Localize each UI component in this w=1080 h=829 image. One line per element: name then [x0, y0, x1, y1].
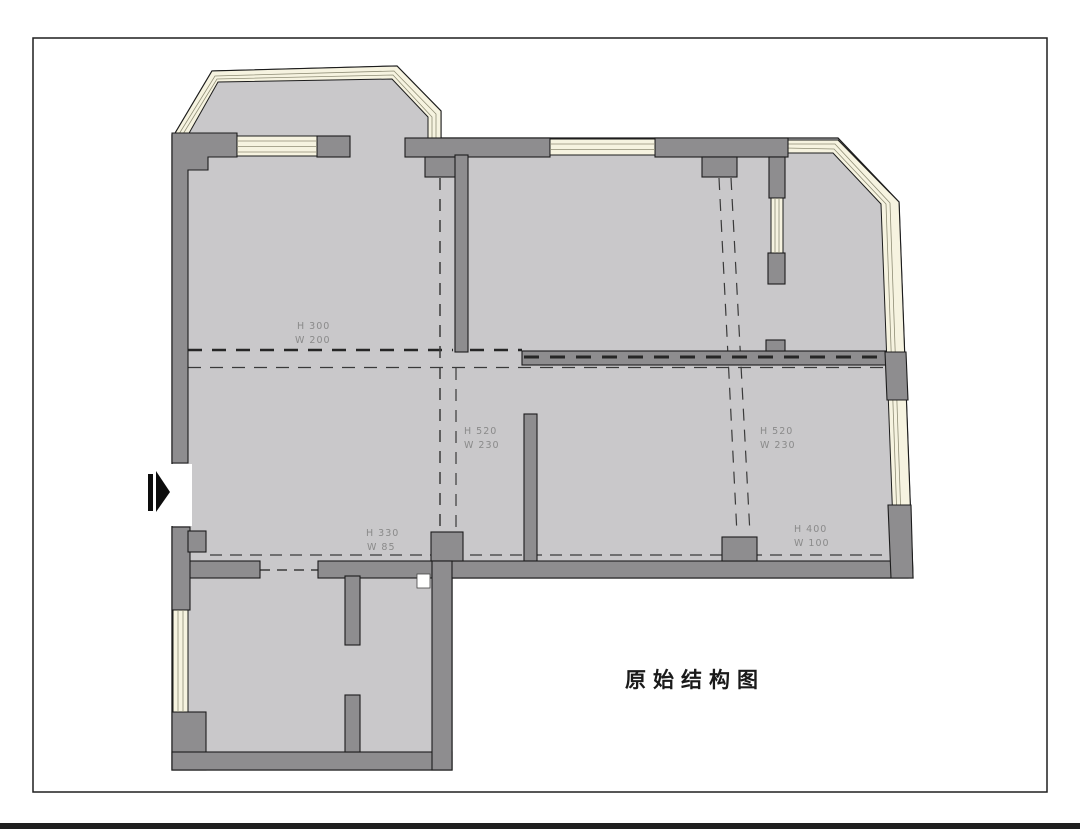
annotation-bottom-left-width: W 85 — [367, 542, 396, 553]
wall-left-mid-step — [188, 531, 206, 552]
wall-pillar-bottom-1 — [431, 532, 463, 561]
wall-stub-upper — [345, 576, 360, 645]
bottom-edge-bar — [0, 823, 1080, 829]
annotation-left-room-height: H 300 — [297, 321, 330, 332]
annotation-left-room-width: W 200 — [295, 335, 331, 346]
wall-duct-upper — [769, 157, 785, 198]
annotation-right-height: H 520 — [760, 426, 793, 437]
wall-pillar-top-1 — [425, 157, 458, 177]
wall-bottom-room-top — [188, 561, 260, 578]
wall-stub-lower — [345, 695, 360, 752]
wall-bottom-room-bottom — [172, 752, 452, 770]
wall-bottom-main — [318, 561, 908, 578]
wall-bottom-room-right — [432, 561, 452, 770]
plan-title: 原始结构图 — [625, 668, 765, 692]
wall-top-1 — [405, 138, 550, 157]
wall-right-block-upper — [885, 352, 908, 400]
wall-pillar-bottom-2 — [722, 537, 757, 561]
window-top-center — [550, 139, 655, 155]
wall-notch — [417, 574, 430, 588]
wall-lower-vertical — [524, 414, 537, 561]
wall-right-block-lower — [888, 505, 913, 578]
annotation-bottom-right-height: H 400 — [794, 524, 827, 535]
window-bottom-left — [173, 610, 188, 712]
wall-middle-bump — [766, 340, 785, 351]
window-duct — [771, 198, 783, 253]
wall-top-2 — [655, 138, 788, 157]
window-top-left — [237, 136, 317, 156]
annotation-bottom-left-height: H 330 — [366, 528, 399, 539]
annotation-center-height: H 520 — [464, 426, 497, 437]
annotation-bottom-right-width: W 100 — [794, 538, 830, 549]
wall-center-vertical — [455, 155, 468, 352]
floor-area — [172, 66, 913, 770]
wall-left-mid — [172, 527, 190, 610]
wall-duct-lower — [768, 253, 785, 284]
wall-pillar-top-2 — [702, 157, 737, 177]
annotation-right-width: W 230 — [760, 440, 796, 451]
door-opening — [167, 464, 192, 526]
floor-plan-image: H 300 W 200 H 520 W 230 H 520 W 230 H 33… — [0, 0, 1080, 829]
entry-arrow-bar — [148, 474, 153, 511]
wall-top-left-block — [317, 136, 350, 157]
entry-door — [148, 464, 192, 526]
annotation-center-width: W 230 — [464, 440, 500, 451]
